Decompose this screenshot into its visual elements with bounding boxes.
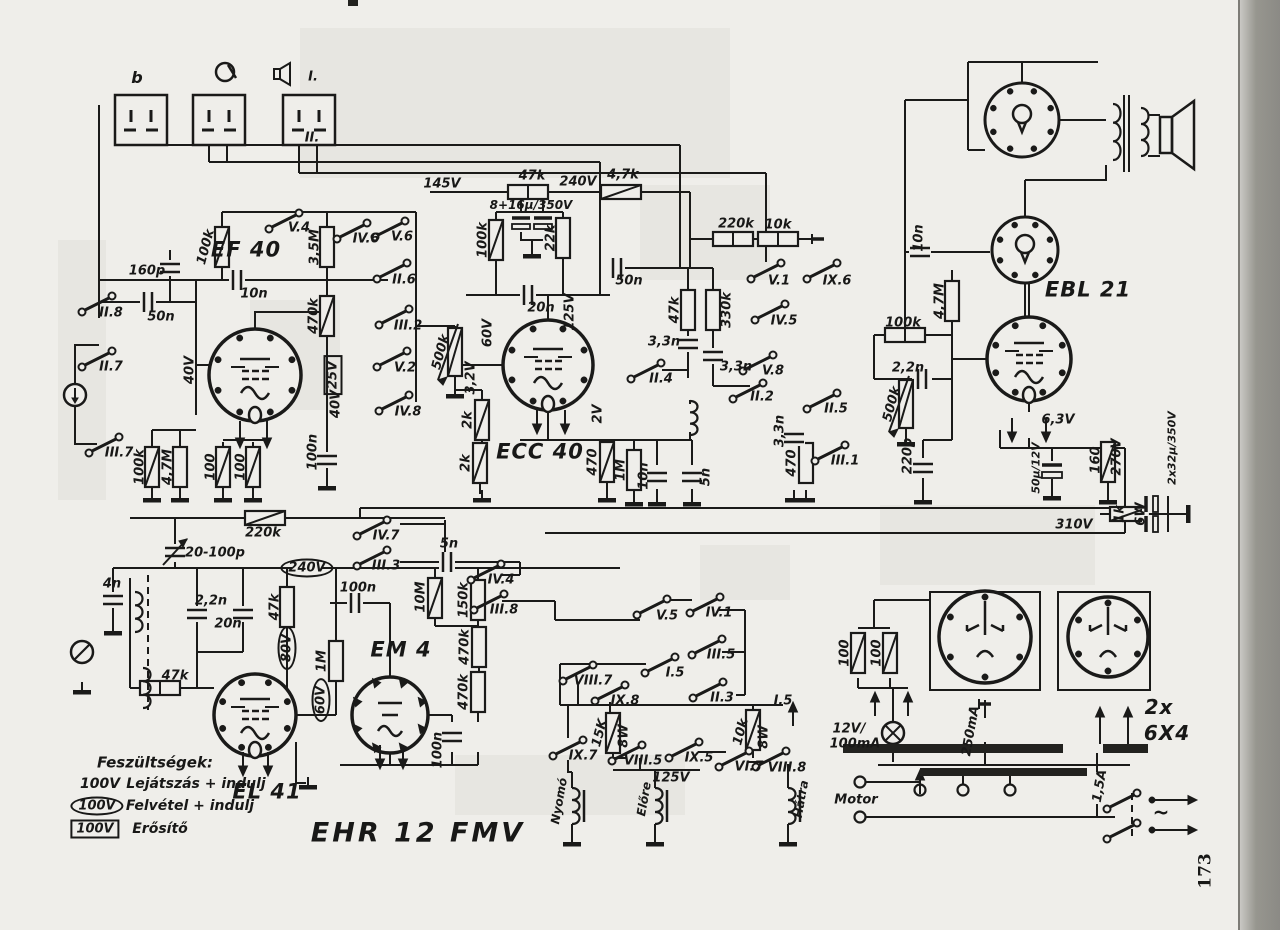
schematic-label: 2x32μ/350V [1167,411,1178,485]
schematic-label: 6W [1135,502,1148,525]
resistor-symbol [428,578,442,618]
connector-socket [193,95,245,145]
arrow-up-icon [871,692,880,716]
resistor-symbol [681,290,695,330]
schematic-label: 3,3n [648,336,680,349]
ground-symbol [473,490,491,503]
terminal-plate [812,234,824,244]
schematic-label: V.6 [391,231,413,244]
capacitor-symbol [102,592,124,608]
resistor-symbol [472,627,486,667]
schematic-label: 47k [669,297,682,324]
arrow-right-icon [1176,796,1197,805]
ground-symbol [648,494,666,507]
schematic-label: 240V [280,559,333,578]
schematic-label: 6X4 [1144,723,1190,743]
schematic-label: IV.1 [706,607,733,620]
tube-socket-symbol [992,217,1058,283]
phono-icon [216,63,236,81]
schematic-label: 47k [162,670,189,683]
schematic-label: 3,3n [720,361,752,374]
ground-symbol [646,834,664,847]
schematic-label: 2,2n [892,362,924,375]
schematic-label: 22k [545,225,558,252]
schematic-label: 47k [519,170,546,183]
schematic-label: EF 40 [211,240,281,261]
coil-symbol [135,592,143,632]
schematic-label: III.2 [394,320,423,333]
ground-symbol [1178,505,1191,523]
schematic-label: III.5 [707,649,736,662]
arrow-down-icon [533,410,542,434]
schematic-label: 8W [618,724,631,747]
schematic-label: III.3 [372,560,401,573]
schematic-label: IV.7 [373,530,400,543]
capacitor-symbol [439,552,455,572]
resistor-symbol [758,232,798,246]
schematic-label: 47k [269,594,282,621]
ground-symbol [104,623,122,636]
schematic-label: 160 [1090,446,1103,473]
schematic-label: V.1 [768,275,790,288]
resistor-symbol [600,442,614,482]
ground-symbol [598,490,616,503]
schematic-label: Felvétel + indulj [126,799,254,813]
schematic-label: I.5 [666,667,685,680]
schematic-label: 100n [432,732,445,768]
electrolytic-capacitor-symbol [512,214,530,229]
schematic-label: 8W [758,725,771,748]
resistor-symbol [799,443,813,483]
schematic-label: 100k [885,317,921,330]
schematic-label: II. [305,132,320,145]
schematic-label: 470k [458,674,471,710]
rectifier-tube-symbol [1068,597,1148,677]
wire [920,776,1010,785]
schematic-label: 100 [839,639,852,666]
schematic-label: 470 [587,448,600,475]
schematic-label: 470k [308,298,321,334]
schematic-label: 220k [245,527,281,540]
wire [1124,95,1129,172]
winding-bar [1103,744,1148,753]
schematic-label: 60V [482,319,495,347]
schematic-label: IX.5 [685,752,714,765]
capacitor-symbol [677,336,699,352]
schematic-label: 2k [462,411,475,429]
coil-symbol [690,401,698,435]
schematic-label: I.5 [774,695,793,708]
schematic-label: II.7 [99,361,123,374]
schematic-label: IX.7 [569,750,598,763]
schematic-label: 100k [477,222,490,258]
ground-symbol [563,834,581,847]
schematic-label: 40V [184,356,197,384]
schematic-label: 4,7k [607,169,639,182]
junction-dot [1149,827,1155,833]
rectifier-tube-symbol [939,591,1031,683]
schematic-label: 125V [652,772,689,785]
schematic-label: 100V [70,820,119,839]
ground-symbol [446,386,464,399]
schematic-label: VIII.5 [624,755,663,768]
electrolytic-capacitor-symbol [1042,461,1062,479]
resistor-symbol [471,672,485,712]
schematic-label: 20n [527,302,554,315]
schematic-label: 100V [80,777,120,791]
ground-symbol [244,490,262,503]
scan-shade [300,28,730,178]
wire [196,280,210,415]
ground-symbol [683,494,701,507]
schematic-label: 8+16μ/350V [490,199,573,211]
schematic-label: III.8 [490,604,519,617]
page-number: 173 [1198,853,1215,889]
schematic-label: 50μ/12V [1031,442,1042,493]
resistor-symbol [489,220,503,260]
schematic-label: Erősítő [132,822,188,836]
arrow-down-icon [236,424,245,448]
schematic-label: 2V [592,404,605,423]
schematic-label: 80V [278,626,297,670]
schematic-label: IV.4 [488,574,515,587]
lamp-icon [882,722,904,744]
wire [296,742,306,783]
schematic-label: 5n [700,468,713,486]
schematic-label: 100n [307,434,320,470]
wire [1100,723,1128,744]
schematic-label: I. [308,71,318,84]
terminal-symbol [855,777,866,788]
schematic-label: 125V [564,293,577,330]
ground-symbol [523,246,541,259]
schematic-label: 3,3n [774,415,787,447]
terminal-symbol [855,812,866,823]
schematic-label: 50n [615,275,642,288]
terminal-symbol [1005,785,1016,796]
schematic-label: 2k [460,454,473,472]
resistor-symbol [475,400,489,440]
schematic-label: 220p [902,438,915,474]
schematic-label: III.7 [105,447,134,460]
schematic-label: 2,2n [195,595,227,608]
schematic-label: ~ [1153,802,1170,822]
schematic-label: IX.8 [611,695,640,708]
meter-icon [64,384,86,406]
ground-symbol [143,490,161,503]
schematic-label: 2x [1145,697,1174,717]
arrow-right-icon [1176,826,1197,835]
schematic-label: 310V [1055,519,1092,532]
ground-symbol [914,492,932,505]
tube-socket-symbol [985,83,1059,157]
ground-symbol [1043,488,1061,501]
schematic-label: II.2 [750,391,774,404]
resistor-symbol [329,641,343,681]
schematic-label: 270V [1111,438,1124,475]
schematic-label: VI.7 [735,761,764,774]
vacuum-tube-symbol [214,674,296,758]
schematic-label: 100 [871,639,884,666]
schematic-label: 100V [70,797,123,816]
schematic-page: bI.II.145V47k240V4,7k8+16μ/350V100k22k50… [0,0,1280,930]
ground-symbol [73,682,91,695]
connector-socket [115,95,167,145]
arrow-up-icon [904,692,913,716]
schematic-label: 1M [615,459,628,481]
coil-symbol [1113,104,1121,160]
schematic-label: 4n [103,578,121,591]
schematic-label: b [131,70,142,86]
vacuum-tube-symbol [987,317,1071,403]
winding-bar [348,0,358,6]
vacuum-tube-symbol [209,329,301,423]
schematic-label: 100k [134,449,147,485]
arrow-up-icon [1096,707,1105,731]
schematic-label: 220k [718,218,754,231]
schematic-label: 5n [440,538,458,551]
schematic-label: VIII.8 [768,762,807,775]
schematic-label: Lejátszás + indulj [126,777,265,791]
schematic-label: V.8 [762,365,784,378]
schematic-label: 470 [786,449,799,476]
schematic-label: 3,5M [309,229,322,265]
schematic-label: 160p [129,265,165,278]
switch-symbol [1104,820,1141,843]
speaker-icon [274,63,290,85]
capacitor-symbol [347,593,363,613]
tape-head-icon [71,641,93,663]
resistor-symbol [508,185,548,199]
schematic-label: Motor [834,794,877,807]
schematic-label: IV.5 [771,315,798,328]
schematic-label: II.4 [649,373,673,386]
schematic-label: 4,7M [162,449,175,485]
schematic-label: 145V [423,178,460,191]
resistor-symbol [706,290,720,330]
schematic-label: III.1 [831,455,860,468]
schematic-label: V.5 [656,610,678,623]
wire [537,412,565,424]
schematic-label: 100 [235,453,248,480]
schematic-label: 6,3V [1041,414,1074,427]
coil-symbol [1141,108,1149,156]
schematic-label: 240V [559,176,596,189]
resistor-symbol [473,443,487,483]
scan-edge [1238,0,1280,930]
drawing-title: EHR 12 FMV [311,820,525,847]
schematic-label: 10n [240,288,267,301]
vacuum-tube-symbol [503,320,593,412]
schematic-label: Feszültségek: [97,756,213,771]
ground-symbol [318,478,336,491]
schematic-label: 20n [214,618,241,631]
schematic-label: V.2 [394,362,416,375]
wire [923,379,952,496]
schematic-label: ECC 40 [496,442,584,463]
resistor-symbol [851,633,865,673]
arrow-up-icon [1124,707,1133,731]
schematic-label: II.8 [99,307,123,320]
arrow-down-icon [1008,418,1017,442]
schematic-label: 100 [205,453,218,480]
arrow-down-icon [263,424,272,448]
schematic-label: 1k [1114,505,1127,523]
schematic-label: 12V/ [833,723,866,736]
schematic-label: 20-100p [185,547,245,560]
wire [1148,115,1160,156]
ground-symbol [625,494,643,507]
wire [130,568,287,688]
schematic-label: 40V [330,390,343,418]
schematic-label: EBL 21 [1045,280,1131,301]
schematic-label: IV.8 [395,406,422,419]
ground-symbol [1099,492,1117,505]
arrow-down-icon [561,410,570,434]
schematic-label: 330k [721,292,734,328]
resistor-symbol [713,232,753,246]
ground-symbol [214,490,232,503]
schematic-label: 470k [459,629,472,665]
schematic-label: 10n [638,462,651,489]
terminal-symbol [958,785,969,796]
resistor-symbol [245,511,285,525]
wire [866,772,920,786]
ground-symbol [779,834,797,847]
schematic-label: 4,7M [934,283,947,319]
magic-eye-tube-symbol [352,677,428,753]
schematic-label: 150k [458,582,471,618]
resistor-symbol [883,633,897,673]
schematic-label: II.3 [710,692,734,705]
schematic-label: VIII.7 [574,675,613,688]
ground-symbol [171,490,189,503]
schematic-label: 1M [316,650,329,672]
switch-symbol [1104,790,1141,813]
scan-shade [700,545,790,600]
schematic-label: 60V [312,678,331,722]
schematic-label: 10k [765,219,792,232]
schematic-label: IV.6 [353,233,380,246]
schematic-label: II.6 [392,274,416,287]
wire [572,824,788,840]
resistor-symbol [601,185,641,199]
schematic-label: 10n [913,224,926,251]
schematic-label: EM 4 [370,640,431,661]
schematic-label: 3,2V [465,361,478,394]
resistor-symbol [320,296,334,336]
schematic-label: II.5 [824,403,848,416]
schematic-label: 100mA [830,738,881,751]
speaker-icon [1160,101,1194,169]
ground-symbol [797,490,815,503]
schematic-label: 100n [340,582,376,595]
schematic-label: 10M [415,581,428,612]
schematic-label: IX.6 [823,275,852,288]
winding-bar [920,768,1087,776]
schematic-label: 50n [147,311,174,324]
